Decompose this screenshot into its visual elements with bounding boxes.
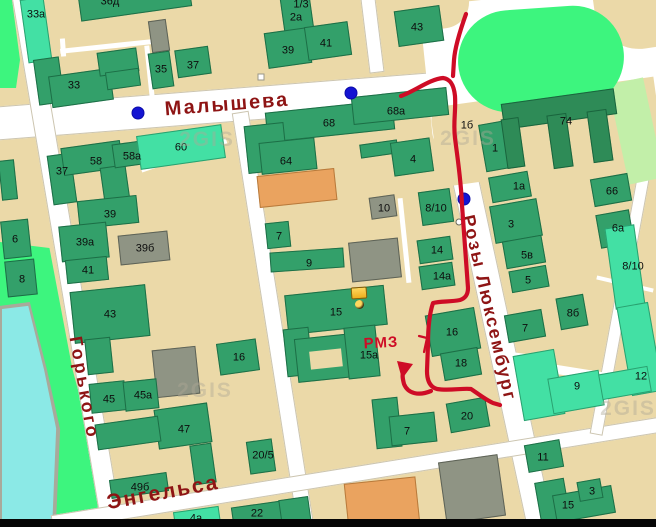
building-number: 39 (282, 46, 294, 57)
building-number: 5 (525, 276, 531, 287)
building-number: 64 (280, 157, 292, 168)
building-footprint[interactable] (438, 454, 506, 524)
building-number: 1а (513, 182, 525, 193)
building-number: 8/10 (622, 262, 643, 273)
building-number: 7 (404, 427, 410, 438)
building-number: 1/3 (293, 0, 308, 11)
building-number: 41 (320, 39, 332, 50)
transit-stop-dot[interactable] (458, 193, 471, 206)
building-number: 68 (323, 119, 335, 130)
building-number: 22 (251, 509, 263, 520)
building-number: 11 (537, 453, 548, 464)
watermark-logo: 2GIS (600, 397, 656, 421)
building-number: 58 (90, 157, 102, 168)
building-number: 74 (560, 117, 572, 128)
building-footprint[interactable] (348, 237, 402, 282)
building-footprint[interactable] (389, 412, 438, 447)
building-number: 8 (19, 275, 25, 286)
building-number: 15а (360, 351, 378, 362)
building-number: 35 (155, 65, 167, 76)
building-number: 12 (635, 372, 647, 383)
watermark-logo: 2GIS (177, 379, 233, 403)
building-number: 10 (378, 204, 390, 215)
building-number: 9 (574, 382, 580, 393)
building-number: 43 (104, 310, 116, 321)
building-number: 36д (101, 0, 120, 8)
small-poi-icon (258, 74, 265, 81)
building-footprint[interactable] (257, 168, 338, 208)
route-path (403, 373, 431, 394)
building-footprint (309, 348, 343, 369)
building-number: 7 (522, 324, 528, 335)
building-number: 66 (606, 187, 618, 198)
building-number: 45 (103, 395, 115, 406)
building-number: 6а (612, 224, 624, 235)
building-number: 43 (411, 23, 423, 34)
building-number: 16 (233, 353, 245, 364)
building-number: 39б (136, 244, 155, 255)
building-number: 5в (521, 251, 533, 262)
stop-icon (456, 219, 463, 226)
building-number: 16 (446, 328, 458, 339)
building-number: 3 (589, 487, 595, 498)
building-number: 15 (330, 308, 342, 319)
bottom-bar (0, 519, 656, 527)
map-pin-base (355, 300, 364, 309)
building-number: 3 (508, 220, 514, 231)
building-number: 2а (290, 13, 302, 24)
building-number: 47 (178, 425, 190, 436)
building-number: 4 (410, 155, 416, 166)
building-number: 41 (82, 266, 94, 277)
building-number: 9 (306, 259, 312, 270)
transit-stop-dot[interactable] (132, 107, 145, 120)
building-number: 14а (433, 272, 451, 283)
watermark-logo: 2GIS (440, 127, 496, 151)
building-footprint[interactable] (488, 171, 532, 204)
road (360, 0, 384, 73)
building-number: 15 (562, 501, 574, 512)
building-number: 7 (276, 232, 282, 243)
watermark-logo: 2GIS (179, 128, 235, 152)
transit-stop-dot[interactable] (345, 87, 358, 100)
building-number: 20/5 (252, 451, 273, 462)
building-footprint[interactable] (148, 19, 170, 53)
building-number: 37 (56, 167, 68, 178)
building-footprint[interactable] (0, 159, 18, 200)
map-pin-marker[interactable] (351, 286, 368, 299)
building-number: 33а (27, 10, 45, 21)
route-arrowhead (397, 361, 413, 379)
route-path (419, 336, 427, 352)
building-footprint[interactable] (76, 0, 192, 22)
building-number: 14 (431, 246, 443, 257)
building-number: 8б (567, 309, 579, 320)
building-number: 45а (134, 391, 152, 402)
building-number: 20 (461, 412, 473, 423)
driveway (60, 38, 66, 56)
building-footprint[interactable] (105, 68, 141, 91)
map-canvas[interactable]: 36д33а3335371/32а3941436868а644108/10791… (0, 0, 656, 527)
building-number: 58а (123, 152, 141, 163)
building-number: 6 (12, 235, 18, 246)
building-number: 68а (387, 107, 405, 118)
building-number: 18 (455, 359, 467, 370)
building-number: 33 (68, 81, 80, 92)
building-number: 39а (76, 238, 94, 249)
building-number: 8/10 (425, 204, 446, 215)
building-number: 37 (187, 61, 199, 72)
building-number: 39 (104, 210, 116, 221)
route-destination-note: РМЗ (363, 334, 399, 353)
